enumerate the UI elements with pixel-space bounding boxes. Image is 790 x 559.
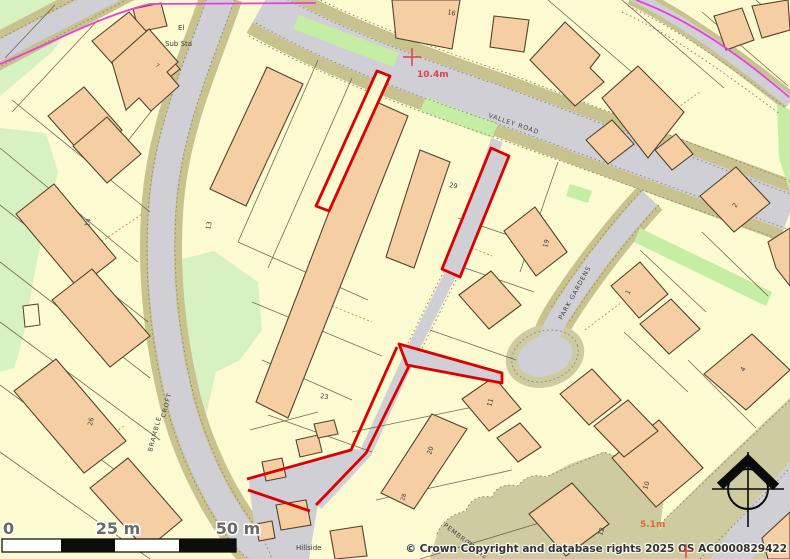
house-number: 29: [449, 181, 459, 190]
house-number: 26: [86, 417, 96, 427]
scale-bar-segment: [179, 539, 236, 552]
scale-label-50m: 50 m: [216, 519, 261, 538]
house-number: 13: [204, 221, 214, 231]
os-map-plan: El Sub Sta VALLEY ROAD PARK GARDENS BRAM…: [0, 0, 790, 559]
spot-height-label: 10.4m: [417, 70, 449, 80]
map-canvas: El Sub Sta VALLEY ROAD PARK GARDENS BRAM…: [0, 0, 790, 559]
spot-height-label: 5.1m: [640, 520, 665, 530]
hillside-label: Hillside: [296, 544, 321, 552]
el-sub-sta-label: Sub Sta: [165, 40, 192, 48]
building: [330, 526, 367, 559]
house-number: 23: [320, 392, 329, 401]
house-number: 16: [447, 8, 457, 18]
scale-label-25m: 25 m: [96, 519, 141, 538]
house-number: 14: [83, 218, 93, 228]
building: [490, 16, 529, 52]
scale-label-0: 0: [3, 519, 14, 538]
scale-bar-segment: [61, 539, 115, 552]
el-sub-sta-label: El: [178, 24, 184, 32]
copyright-text: © Crown Copyright and database rights 20…: [406, 543, 787, 555]
outbuilding: [23, 304, 40, 327]
